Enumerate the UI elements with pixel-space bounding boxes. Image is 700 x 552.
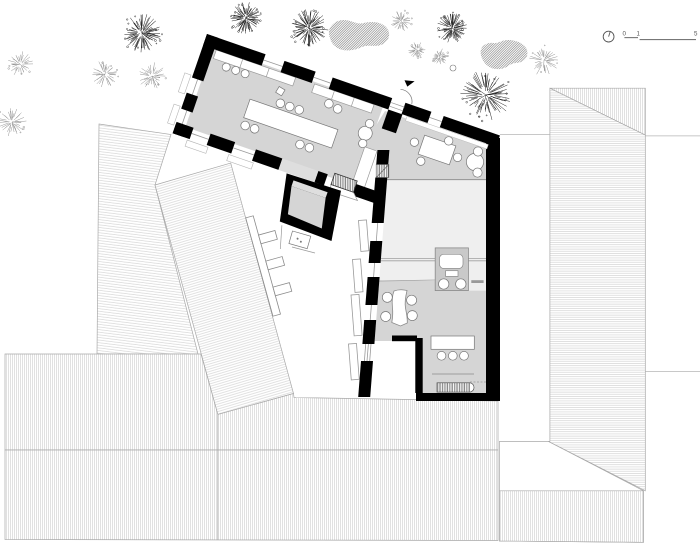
svg-text:1: 1 bbox=[637, 30, 641, 37]
svg-text:0: 0 bbox=[623, 30, 627, 37]
svg-text:5: 5 bbox=[694, 30, 698, 37]
